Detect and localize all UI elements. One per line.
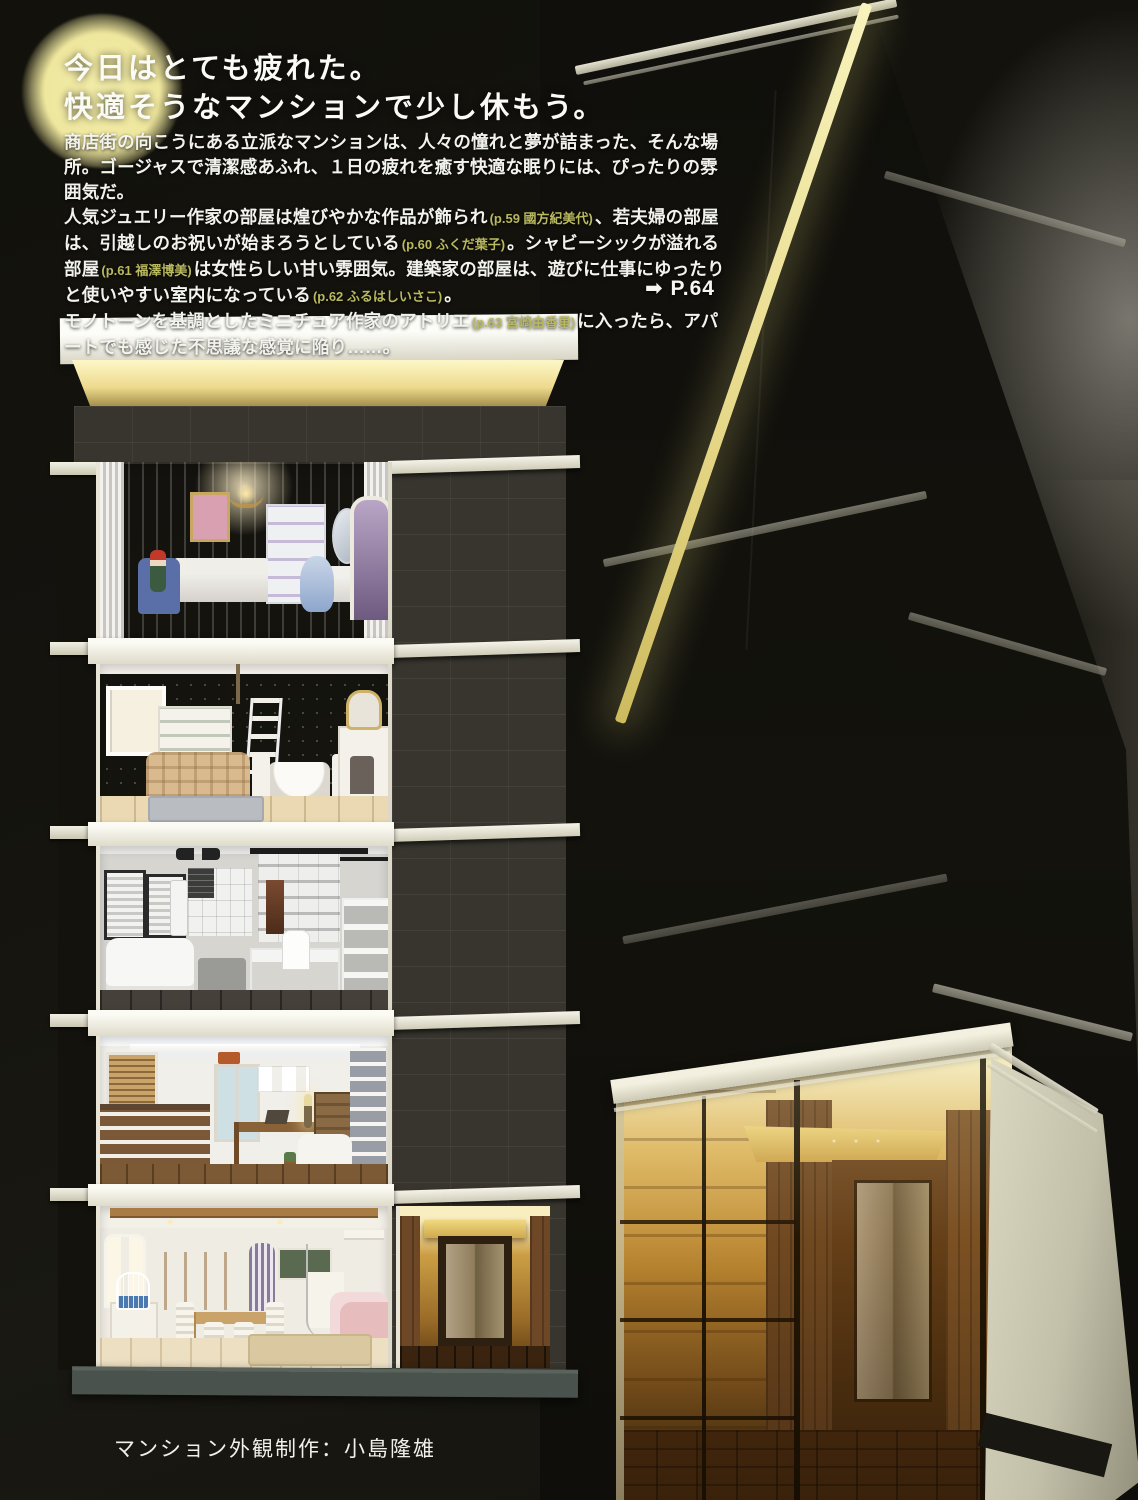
page-title: 今日はとても疲れた。 快適そうなマンションで少し休もう。 [64,50,605,128]
room-4f-couple-living [96,664,392,822]
grey-rug [148,796,264,822]
floor-ledge-stub [50,462,98,475]
base-slab [72,1366,578,1398]
floor-slab [88,638,394,664]
cube-bookshelf [350,1048,386,1172]
mini-elevator-door [446,1244,504,1338]
intro-paragraph: 商店街の向こうにある立派なマンションは、人々の憧れと夢が詰まった、そんな場所。ゴ… [64,130,728,205]
intro-text-run: いる [276,285,311,305]
art-frames [258,1066,310,1092]
page-title-line1: 今日はとても疲れた。 [64,50,605,89]
blind-window [104,870,146,940]
magazine-page: 今日はとても疲れた。 快適そうなマンションで少し休もう。 商店街の向こうにある立… [0,0,1138,1500]
intro-text-run: 。 [444,285,462,305]
bird-cage [116,1272,150,1310]
fluted-column-left [100,462,124,638]
intro-text-run: (p.59 國方紀美代) [488,211,595,226]
room-1f-sweet-living [96,1206,392,1368]
side-cut-wall [58,462,96,1370]
ceiling-fan [176,848,220,860]
floor-slab [88,822,394,846]
window-frame [106,686,166,756]
ceiling-lamp [236,664,240,704]
kitchen-back [164,1252,244,1310]
credit-caption: マンション外観制作：小島隆雄 [114,1433,436,1463]
downlights [160,1218,300,1226]
gilt-mirror [346,690,382,730]
doll-figure [150,550,166,592]
intro-text-run: (p.60 ふくだ葉子) [400,237,507,252]
chandelier [228,470,264,508]
red-box [218,1052,240,1064]
floor-slab [88,1184,394,1206]
dark-wood-floor [100,990,388,1010]
white-chair [252,754,270,802]
display-table [174,558,268,602]
floor-slab [88,1010,394,1036]
room-3f-monotone-atelier [96,846,392,1010]
intro-text: 商店街の向こうにある立派なマンションは、人々の憧れと夢が詰まった、そんな場所。ゴ… [64,130,728,360]
arch-curtain-doorway [246,1240,278,1311]
mini-elevator-lobby [396,1206,550,1368]
mini-lobby-floor [400,1346,550,1368]
fireplace-opening [350,756,374,794]
intro-text-run: 商店街の向こうにある立派なマンションは、人々の憧れと夢が詰まった、そんな場所。ゴ… [64,132,718,202]
drawer-cabinet [100,1104,210,1170]
intro-text-run: (p.62 ふるはしいさこ) [311,289,444,304]
arch-doorway [350,496,392,620]
intro-text-run: (p.61 福澤博美) [99,263,193,278]
portrait-frame [190,492,230,542]
intro-paragraph: モノトーンを基調としたミニチュア作家のアトリエ(p.63 宮崎由香里)に入ったら… [64,309,728,360]
page-title-line2: 快適そうなマンションで少し休もう。 [64,89,605,128]
arrow-right-icon: ➡ [645,277,664,300]
stone-band [74,406,566,464]
roof-glow-band [72,360,564,410]
black-tile-splash [188,868,214,898]
ceiling-light-cove [130,1044,360,1052]
open-doorway [266,880,284,934]
room-5f-jewelry-artist [96,462,392,638]
desk-laptop [265,1110,290,1124]
blue-gown-mannequin [300,556,334,612]
continue-page-label: P.64 [670,277,715,300]
continue-page-ref: ➡ P.64 [645,276,715,301]
cafe-wall-shelf [344,1230,384,1238]
wood-blind-window [106,1052,158,1112]
intro-paragraph: 人気ジュエリー作家の部屋は煌びやかな作品が飾られ(p.59 國方紀美代)、若夫婦… [64,205,728,309]
jute-rug [248,1334,372,1366]
white-sofa [106,938,194,998]
intro-text-run: (p.63 宮崎由香里) [470,315,577,330]
intro-text-run: モノトーンを基調としたミニチュア作家のアトリエ [64,311,470,331]
floor-lamp [304,1094,312,1128]
white-fridge [170,880,188,936]
intro-text-run: 人気ジュエリー作家の部屋は煌びやかな作品が飾られ [64,207,488,227]
room-2f-architect-office [96,1036,392,1184]
ceiling-beam [110,1208,378,1218]
wood-floor [100,1164,388,1184]
desk-chair [282,930,310,970]
